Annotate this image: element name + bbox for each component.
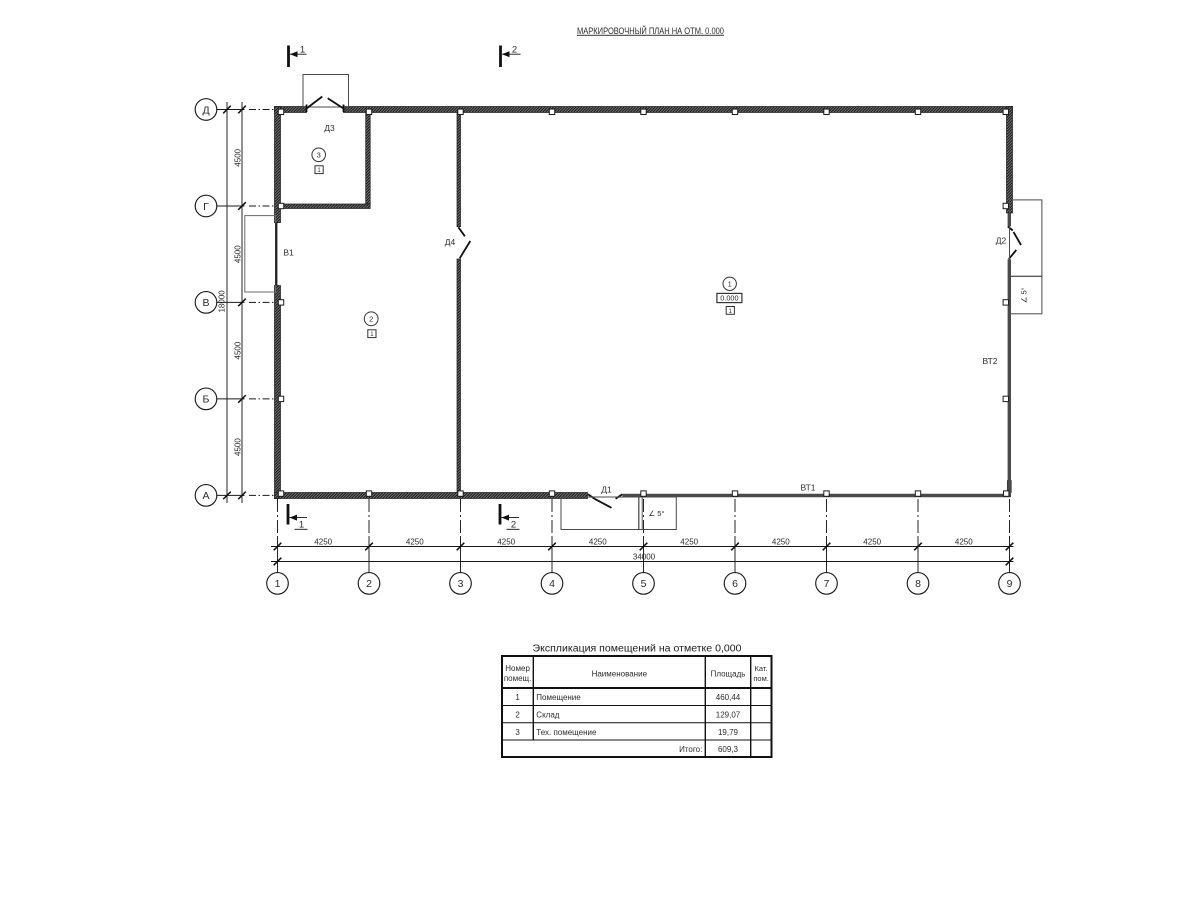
svg-text:34000: 34000: [633, 552, 656, 561]
svg-text:Номер: Номер: [505, 664, 530, 673]
svg-text:4250: 4250: [863, 537, 881, 546]
svg-text:1: 1: [728, 280, 732, 289]
svg-text:Помещение: Помещение: [536, 693, 581, 702]
svg-text:Д4: Д4: [445, 237, 456, 247]
svg-text:2: 2: [366, 578, 372, 590]
svg-text:Г: Г: [203, 201, 209, 213]
svg-text:Д2: Д2: [996, 236, 1007, 246]
svg-text:Склад: Склад: [536, 711, 559, 720]
svg-text:460,44: 460,44: [716, 693, 741, 702]
svg-text:помещ.: помещ.: [504, 674, 532, 683]
svg-text:2: 2: [512, 45, 517, 56]
svg-text:3: 3: [458, 578, 464, 590]
svg-text:4250: 4250: [314, 537, 332, 546]
svg-text:Итого:: Итого:: [679, 745, 702, 754]
svg-text:Кат.: Кат.: [755, 664, 768, 673]
svg-text:Тех. помещение: Тех. помещение: [536, 728, 597, 737]
svg-text:1: 1: [515, 693, 520, 702]
svg-text:Б: Б: [203, 394, 210, 406]
svg-text:∠ 5°: ∠ 5°: [1020, 287, 1029, 303]
svg-text:4250: 4250: [772, 537, 790, 546]
svg-text:0.000: 0.000: [720, 294, 738, 303]
svg-text:Д3: Д3: [324, 123, 335, 133]
svg-text:4500: 4500: [233, 148, 242, 166]
svg-text:4250: 4250: [406, 537, 424, 546]
svg-text:2: 2: [511, 519, 516, 530]
svg-text:Д1: Д1: [601, 485, 612, 495]
svg-text:Площадь: Площадь: [711, 670, 746, 679]
svg-text:МАРКИРОВОЧНЫЙ ПЛАН НА ОТМ. 0.0: МАРКИРОВОЧНЫЙ ПЛАН НА ОТМ. 0.000: [577, 25, 724, 37]
svg-text:19,79: 19,79: [718, 728, 739, 737]
svg-text:1: 1: [299, 519, 304, 530]
svg-text:Д: Д: [202, 104, 209, 116]
svg-text:В1: В1: [283, 247, 294, 257]
svg-text:2: 2: [369, 315, 373, 324]
svg-text:18000: 18000: [218, 290, 227, 313]
svg-text:пом.: пом.: [753, 674, 768, 683]
svg-text:1: 1: [300, 45, 305, 56]
svg-text:4500: 4500: [233, 245, 242, 263]
svg-text:3: 3: [515, 728, 520, 737]
svg-text:4250: 4250: [589, 537, 607, 546]
svg-text:6: 6: [732, 578, 738, 590]
svg-text:609,3: 609,3: [718, 745, 739, 754]
svg-text:4250: 4250: [497, 537, 515, 546]
svg-text:9: 9: [1007, 578, 1013, 590]
svg-text:4250: 4250: [955, 537, 973, 546]
svg-text:Экспликация помещений на отмет: Экспликация помещений на отметке 0,000: [533, 644, 742, 655]
svg-text:8: 8: [915, 578, 921, 590]
svg-text:2: 2: [515, 711, 520, 720]
svg-text:129,07: 129,07: [716, 711, 741, 720]
svg-text:4500: 4500: [233, 438, 242, 456]
svg-text:∠ 5°: ∠ 5°: [649, 509, 665, 518]
svg-text:7: 7: [824, 578, 830, 590]
svg-text:4250: 4250: [680, 537, 698, 546]
svg-text:4500: 4500: [233, 341, 242, 359]
svg-text:ВТ1: ВТ1: [800, 482, 815, 492]
svg-text:Наименование: Наименование: [592, 670, 648, 679]
svg-text:3: 3: [317, 151, 321, 160]
svg-text:4: 4: [549, 578, 555, 590]
svg-text:ВТ2: ВТ2: [982, 356, 997, 366]
svg-text:1: 1: [275, 578, 281, 590]
svg-text:5: 5: [641, 578, 647, 590]
svg-text:А: А: [202, 490, 209, 502]
svg-text:В: В: [202, 297, 209, 309]
